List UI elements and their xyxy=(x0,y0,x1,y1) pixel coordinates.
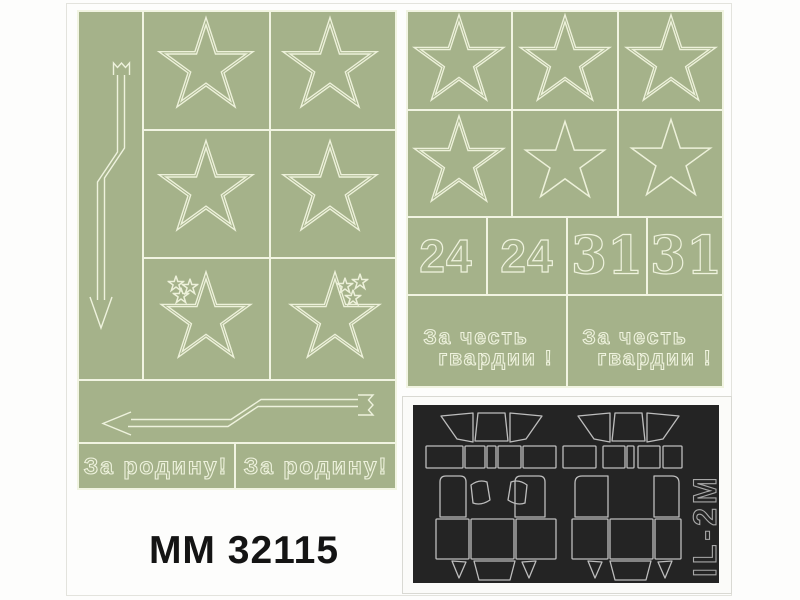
number-mask: 24 xyxy=(419,230,472,282)
number-mask: 31 xyxy=(571,226,643,287)
slogan-text: За родину! xyxy=(244,453,388,479)
slogan-line1: За честь xyxy=(583,326,688,349)
slogan-line2: гвардии ! xyxy=(597,347,712,370)
mask-sheet-right: 24 24 31 31 За честь гвардии ! За честь … xyxy=(406,10,724,388)
canopy-mask-sheet: IL-2M xyxy=(413,405,719,583)
mask-sheet-left: За родину! За родину! xyxy=(77,10,397,490)
slogan-text: За честь гвардии ! xyxy=(424,326,554,370)
product-photo: За родину! За родину! 24 24 31 31 За ч xyxy=(0,0,800,600)
slogan-text: За родину! xyxy=(84,453,228,479)
product-code: MM 32115 xyxy=(128,529,360,575)
slogan-text: За честь гвардии ! xyxy=(583,326,713,370)
slogan-line2: гвардии ! xyxy=(438,347,553,370)
sheet-label: IL-2M xyxy=(687,473,719,577)
black-sheet-background xyxy=(413,405,719,583)
slogan-line1: За честь xyxy=(424,326,529,349)
number-mask: 31 xyxy=(650,226,722,287)
number-mask: 24 xyxy=(500,230,553,282)
